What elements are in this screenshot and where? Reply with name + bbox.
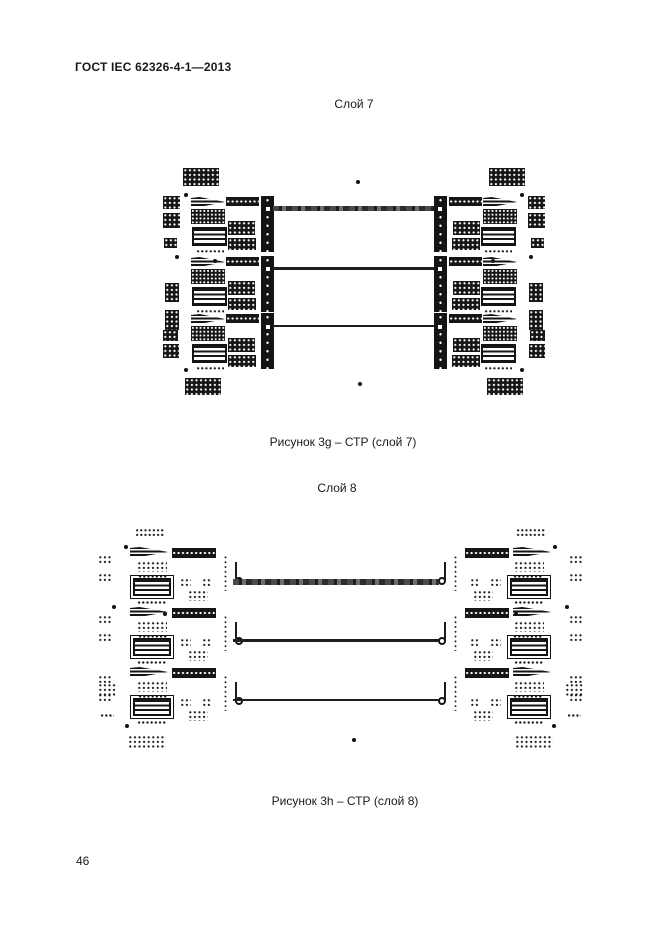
pcb-pad: [529, 283, 543, 302]
pcb-taper-trace: [191, 197, 225, 207]
pcb-pad: [453, 338, 480, 352]
pcb-trace-stub: [235, 622, 237, 640]
pcb-trace-connector: [436, 265, 444, 273]
pcb-fiducial-dot: [356, 180, 360, 184]
pcb-component-box: [510, 698, 548, 716]
pcb-fiducial-dot: [520, 368, 524, 372]
pcb-fiducial-dot: [124, 545, 128, 549]
figure-caption-3h: Рисунок 3h – СТР (слой 8): [272, 794, 419, 808]
figure-title-layer-7: Слой 7: [334, 97, 373, 111]
pcb-dot-row: [100, 713, 114, 718]
pcb-pad: [529, 310, 543, 330]
pcb-trace: [273, 206, 434, 211]
pcb-pad: [528, 196, 545, 209]
pcb-dot-grid: [137, 561, 167, 572]
pcb-pad: [185, 378, 221, 395]
pcb-dot-column: [223, 675, 228, 711]
figure-layer-7-diagram: [0, 160, 661, 410]
pcb-dot-column: [223, 555, 228, 591]
pcb-pad: [163, 330, 178, 341]
figure-title-layer-8: Слой 8: [317, 481, 356, 495]
pcb-pad-dense: [191, 326, 225, 341]
pcb-pad-dot-row: [449, 197, 482, 206]
pcb-fiducial-dot: [552, 724, 556, 728]
pcb-pad: [452, 298, 480, 310]
pcb-pad: [228, 338, 255, 352]
pcb-dot-grid: [188, 710, 208, 721]
pcb-pad: [529, 344, 545, 358]
pcb-dot-grid: [490, 698, 501, 706]
pcb-fiducial-dot: [184, 368, 188, 372]
pcb-dot-grid: [98, 683, 116, 697]
pcb-dot-grid: [98, 555, 112, 565]
pcb-pad: [528, 213, 545, 228]
pcb-pad: [163, 344, 179, 358]
pcb-dot-grid: [473, 710, 493, 721]
pcb-pad-dense: [483, 209, 517, 224]
pcb-component-box: [133, 578, 171, 596]
pcb-dot-grid: [470, 698, 479, 706]
pcb-dot-grid: [98, 615, 112, 625]
pcb-dot-grid: [188, 590, 208, 601]
pcb-pad-dot-row: [449, 314, 482, 323]
pcb-trace-stub: [444, 622, 446, 640]
pcb-fiducial-dot: [163, 612, 167, 616]
pcb-dot-row: [484, 249, 512, 253]
pcb-dot-row: [514, 660, 544, 665]
pcb-dot-row: [484, 366, 512, 370]
pcb-taper-trace: [483, 197, 517, 207]
pcb-dot-grid: [202, 638, 211, 646]
pcb-dot-grid: [569, 573, 583, 582]
pcb-dot-row: [137, 720, 167, 725]
pcb-trace: [233, 699, 439, 701]
pcb-pad-dense: [191, 269, 225, 284]
pcb-taper-trace: [191, 257, 225, 267]
pcb-trace-connector: [264, 205, 272, 213]
pcb-pad: [452, 355, 480, 367]
pcb-taper-trace: [483, 257, 517, 267]
pcb-dot-grid: [137, 621, 167, 632]
pcb-dot-grid: [188, 650, 208, 661]
pcb-component-box: [510, 638, 548, 656]
pcb-trace-stub: [235, 562, 237, 580]
pcb-dot-grid: [569, 633, 583, 642]
pcb-dot-row: [516, 528, 546, 536]
pcb-dot-column: [453, 615, 458, 651]
pcb-trace-stub: [444, 682, 446, 700]
pcb-component-box: [481, 227, 516, 246]
pcb-fiducial-dot: [553, 545, 557, 549]
pcb-taper-trace: [513, 607, 551, 617]
pcb-pad-dot-row: [172, 548, 216, 558]
pcb-dot-row: [567, 713, 581, 718]
pcb-pad-dot-row: [172, 608, 216, 618]
pcb-pad: [163, 196, 180, 209]
pcb-taper-trace: [483, 314, 517, 324]
pcb-pad-dot-row: [449, 257, 482, 266]
pcb-dot-grid: [470, 638, 479, 646]
pcb-dot-row: [196, 366, 224, 370]
pcb-pad: [228, 355, 256, 367]
pcb-pad-dense: [191, 209, 225, 224]
pcb-taper-trace: [513, 667, 551, 677]
figure-caption-3g: Рисунок 3g – СТР (слой 7): [270, 435, 417, 449]
pcb-pad-dot-row: [226, 197, 259, 206]
pcb-pad: [531, 238, 544, 248]
page-number: 46: [76, 854, 89, 868]
pcb-fiducial-dot: [565, 605, 569, 609]
pcb-fiducial-dot: [352, 738, 356, 742]
pcb-dot-grid: [180, 638, 191, 646]
pcb-pad-dot-row: [465, 608, 509, 618]
pcb-pad: [487, 378, 523, 395]
pcb-pad: [228, 238, 256, 250]
pcb-component-box: [510, 578, 548, 596]
pcb-dot-row: [514, 600, 544, 605]
pcb-pad: [453, 221, 480, 235]
pcb-fiducial-dot: [520, 193, 524, 197]
document-page: ГОСТ IEC 62326-4-1—2013 Слой 7 Рисунок 3…: [0, 0, 661, 936]
pcb-pad: [165, 283, 179, 302]
pcb-dot-grid: [98, 633, 112, 642]
pcb-pad-dot-row: [465, 548, 509, 558]
pcb-dot-grid: [490, 578, 501, 586]
pcb-dot-row: [135, 528, 165, 536]
pcb-pad: [164, 238, 177, 248]
pcb-dot-column: [453, 555, 458, 591]
pcb-dot-row: [196, 249, 224, 253]
pcb-dot-grid: [202, 698, 211, 706]
pcb-fiducial-dot: [112, 605, 116, 609]
pcb-pad-dot-row: [465, 668, 509, 678]
pcb-trace: [273, 267, 434, 270]
pcb-trace-connector: [264, 323, 272, 331]
pcb-dot-row: [137, 600, 167, 605]
pcb-dot-grid: [470, 578, 479, 586]
pcb-dot-grid: [473, 590, 493, 601]
pcb-component-box: [192, 344, 227, 363]
pcb-taper-trace: [191, 314, 225, 324]
pcb-pad: [183, 168, 219, 186]
pcb-pad: [228, 221, 255, 235]
pcb-dot-grid: [180, 578, 191, 586]
pcb-fiducial-dot: [529, 255, 533, 259]
pcb-dot-grid: [98, 573, 112, 582]
pcb-pad: [489, 168, 525, 186]
pcb-pad: [228, 281, 255, 295]
pcb-trace-connector: [264, 265, 272, 273]
document-header: ГОСТ IEC 62326-4-1—2013: [75, 60, 231, 74]
pcb-dot-grid: [473, 650, 493, 661]
pcb-pad-dense: [483, 326, 517, 341]
pcb-dot-grid: [514, 681, 544, 692]
pcb-dot-row: [514, 720, 544, 725]
pcb-dot-grid: [180, 698, 191, 706]
pcb-pad-dot-row: [226, 314, 259, 323]
pcb-trace-stub: [235, 682, 237, 700]
pcb-dot-row: [484, 309, 512, 313]
pcb-dot-grid: [514, 561, 544, 572]
pcb-dot-grid: [565, 683, 583, 697]
pcb-pad: [452, 238, 480, 250]
pcb-pad: [228, 298, 256, 310]
pcb-component-box: [192, 227, 227, 246]
pcb-fiducial-dot: [358, 382, 362, 386]
pcb-dot-column: [453, 675, 458, 711]
pcb-pad: [165, 310, 179, 330]
pcb-taper-trace: [513, 547, 551, 557]
pcb-dot-grid: [202, 578, 211, 586]
pcb-trace: [273, 325, 434, 327]
pcb-component-box: [192, 287, 227, 306]
pcb-pad-dense: [483, 269, 517, 284]
pcb-via-bar: [434, 313, 447, 369]
pcb-dot-row: [137, 660, 167, 665]
pcb-dot-grid: [514, 621, 544, 632]
pcb-fiducial-dot: [125, 724, 129, 728]
pcb-trace-connector: [436, 205, 444, 213]
pcb-pad: [530, 330, 545, 341]
pcb-fiducial-dot: [491, 259, 495, 263]
pcb-fiducial-dot: [175, 255, 179, 259]
pcb-dot-grid: [137, 681, 167, 692]
pcb-trace-connector: [436, 323, 444, 331]
pcb-component-box: [133, 638, 171, 656]
pcb-taper-trace: [130, 547, 168, 557]
pcb-pad-dot-row: [172, 668, 216, 678]
pcb-dot-grid: [515, 735, 553, 748]
pcb-trace-stub: [444, 562, 446, 580]
pcb-pad: [163, 213, 180, 228]
pcb-trace: [233, 579, 439, 585]
pcb-dot-row: [196, 309, 224, 313]
pcb-trace: [233, 639, 439, 642]
pcb-dot-grid: [569, 615, 583, 625]
pcb-component-box: [133, 698, 171, 716]
pcb-dot-grid: [490, 638, 501, 646]
pcb-fiducial-dot: [514, 612, 518, 616]
pcb-component-box: [481, 344, 516, 363]
pcb-via-bar: [261, 313, 274, 369]
pcb-fiducial-dot: [213, 259, 217, 263]
pcb-fiducial-dot: [184, 193, 188, 197]
figure-layer-8-diagram: [0, 520, 661, 760]
pcb-taper-trace: [130, 667, 168, 677]
pcb-dot-column: [223, 615, 228, 651]
pcb-component-box: [481, 287, 516, 306]
pcb-dot-grid: [128, 735, 166, 748]
pcb-pad-dot-row: [226, 257, 259, 266]
pcb-dot-grid: [569, 555, 583, 565]
pcb-pad: [453, 281, 480, 295]
